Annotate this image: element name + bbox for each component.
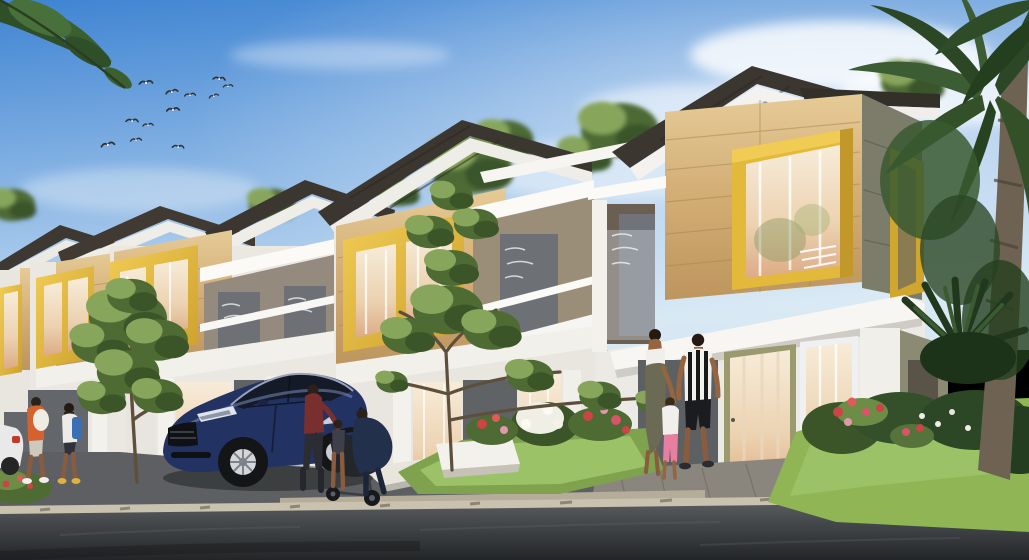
scene-canvas: [0, 0, 1029, 560]
architectural-render: [0, 0, 1029, 560]
yellow-window-box-main: [732, 128, 853, 290]
